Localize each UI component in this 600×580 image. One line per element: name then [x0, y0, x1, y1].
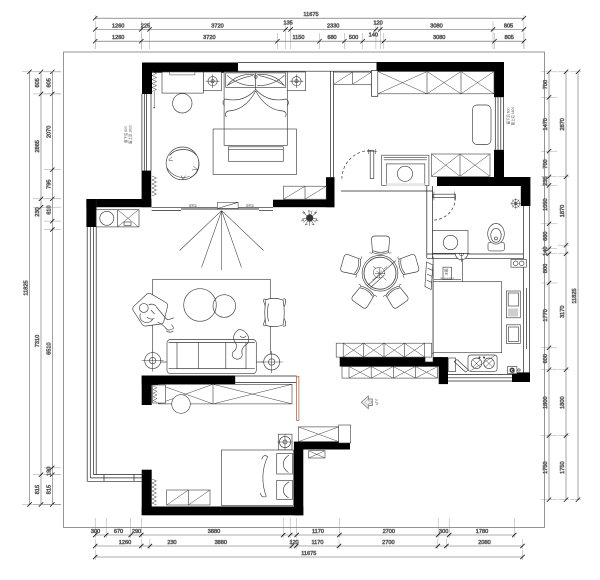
svg-text:2070: 2070 [46, 126, 52, 138]
svg-text:6510: 6510 [46, 342, 52, 354]
svg-text:3080: 3080 [430, 23, 442, 29]
svg-text:2330: 2330 [327, 23, 339, 29]
svg-text:230: 230 [167, 540, 176, 546]
svg-text:815: 815 [46, 485, 52, 494]
svg-text:2080: 2080 [478, 540, 490, 546]
svg-text:2865: 2865 [35, 140, 41, 152]
svg-text:冰箱: 冰箱 [443, 268, 448, 275]
svg-text:7310: 7310 [35, 335, 41, 347]
svg-text:11675: 11675 [303, 12, 318, 18]
svg-text:140: 140 [369, 32, 378, 38]
svg-text:窗帘盒: 窗帘盒 [246, 204, 254, 208]
svg-text:1260: 1260 [119, 540, 131, 546]
svg-text:805: 805 [505, 35, 514, 41]
svg-text:1770: 1770 [543, 309, 549, 321]
svg-text:2700: 2700 [382, 540, 394, 546]
svg-text:700: 700 [543, 159, 549, 168]
svg-text:290: 290 [132, 529, 141, 535]
svg-text:300: 300 [439, 529, 448, 535]
svg-text:REFRIGERATOR: REFRIGERATOR [440, 277, 455, 280]
svg-text:窗下沿 600: 窗下沿 600 [506, 108, 511, 125]
svg-text:1750: 1750 [543, 461, 549, 473]
svg-text:700: 700 [543, 80, 549, 89]
svg-text:795: 795 [46, 180, 52, 189]
svg-text:805: 805 [504, 23, 513, 29]
svg-text:3880: 3880 [208, 529, 220, 535]
svg-text:11825: 11825 [24, 280, 30, 295]
svg-text:235: 235 [543, 176, 549, 185]
svg-text:230: 230 [35, 207, 41, 216]
svg-text:225: 225 [141, 23, 150, 29]
svg-text:11675: 11675 [301, 551, 316, 557]
svg-text:120: 120 [289, 540, 298, 546]
svg-text:815: 815 [35, 485, 41, 494]
svg-text:3720: 3720 [203, 35, 215, 41]
svg-text:11825: 11825 [572, 288, 578, 303]
svg-text:窗下沿 600: 窗下沿 600 [123, 126, 128, 143]
svg-text:135: 135 [283, 20, 292, 26]
svg-text:600: 600 [543, 354, 549, 363]
svg-text:190: 190 [46, 467, 52, 476]
svg-text:1170: 1170 [311, 540, 323, 546]
svg-text:G: G [510, 368, 515, 375]
svg-text:120: 120 [373, 20, 382, 26]
svg-text:3720: 3720 [211, 23, 223, 29]
svg-text:800: 800 [543, 264, 549, 273]
svg-text:1150: 1150 [292, 35, 304, 41]
svg-text:610: 610 [46, 205, 52, 214]
svg-text:窗上沿 1600: 窗上沿 1600 [510, 107, 515, 126]
svg-text:1780: 1780 [476, 529, 488, 535]
svg-text:入户: 入户 [375, 399, 380, 406]
svg-text:140: 140 [543, 247, 549, 256]
svg-text:1800: 1800 [543, 396, 549, 408]
svg-text:500: 500 [349, 35, 358, 41]
svg-text:670: 670 [114, 529, 123, 535]
svg-text:1800: 1800 [560, 396, 566, 408]
svg-text:窗上沿 1600: 窗上沿 1600 [128, 125, 133, 144]
svg-text:2700: 2700 [383, 529, 395, 535]
svg-text:1170: 1170 [312, 529, 324, 535]
svg-text:1470: 1470 [543, 118, 549, 130]
svg-text:1750: 1750 [560, 461, 566, 473]
svg-text:605: 605 [35, 78, 41, 87]
svg-text:680: 680 [327, 35, 336, 41]
svg-text:1260: 1260 [112, 23, 124, 29]
svg-text:1050: 1050 [543, 198, 549, 210]
svg-text:300: 300 [91, 529, 100, 535]
svg-text:1870: 1870 [560, 205, 566, 217]
svg-text:3170: 3170 [560, 305, 566, 317]
svg-text:窗帘盒: 窗帘盒 [189, 204, 197, 208]
svg-text:680: 680 [543, 232, 549, 241]
svg-text:1260: 1260 [112, 35, 124, 41]
svg-text:3880: 3880 [215, 540, 227, 546]
svg-text:3080: 3080 [433, 35, 445, 41]
svg-text:605: 605 [46, 78, 52, 87]
svg-text:2870: 2870 [560, 118, 566, 130]
